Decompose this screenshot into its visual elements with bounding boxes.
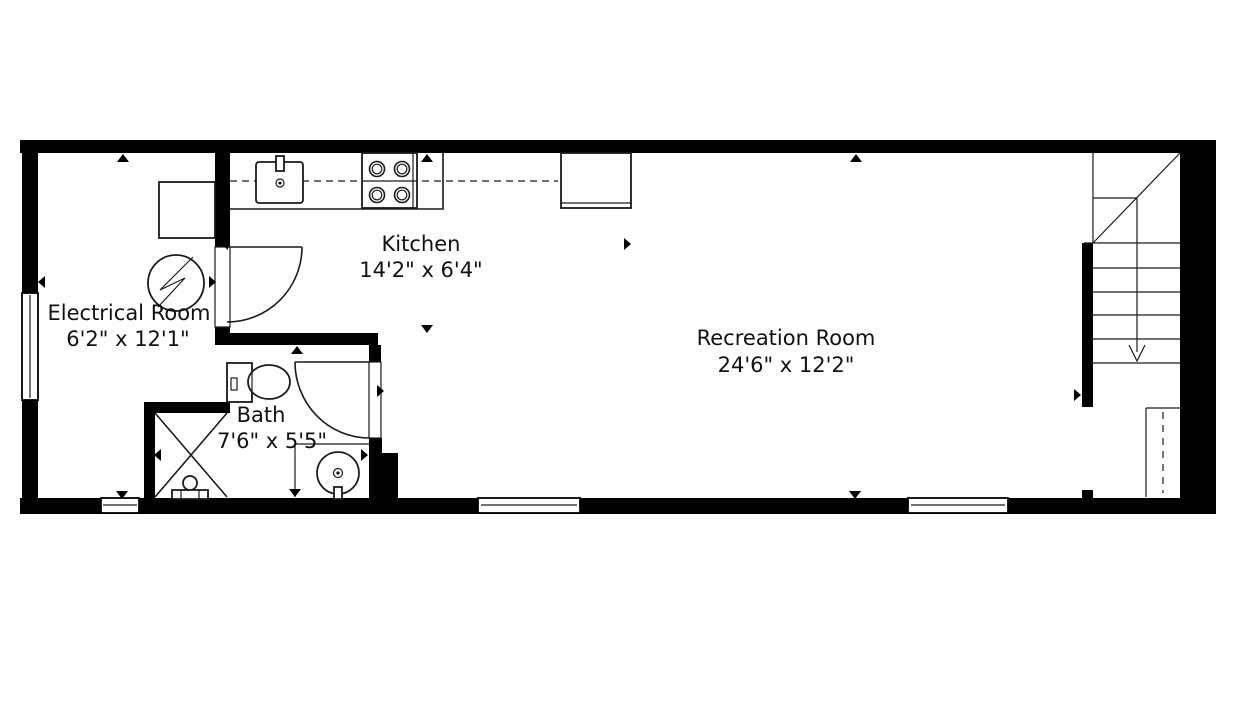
wall-bottom [20, 498, 1216, 514]
wall-top [20, 140, 1216, 153]
stove-icon [362, 153, 417, 208]
wall-bath-right-block [381, 453, 398, 498]
room-dims-kitchen: 14'2" x 6'4" [359, 258, 482, 282]
room-dims-recreation: 24'6" x 12'2" [718, 353, 855, 377]
refrigerator-icon [561, 153, 631, 208]
door-opening [369, 362, 381, 438]
wall-shower-top [144, 402, 230, 413]
door-electrical-room [215, 247, 302, 327]
wall-bath-right [369, 438, 382, 498]
door-bath [295, 362, 381, 438]
kitchen-sink-icon [256, 156, 303, 203]
room-label-bath: Bath [237, 403, 286, 427]
room-label-recreation: Recreation Room [697, 326, 876, 350]
floor-plan-drawing: Electrical Room 6'2" x 12'1" Kitchen 14'… [0, 0, 1240, 720]
wall-bath-top [215, 333, 378, 345]
wall-right [1180, 140, 1216, 514]
wall-electrical-kitchen-upper [215, 140, 230, 247]
floor-plan: Electrical Room 6'2" x 12'1" Kitchen 14'… [0, 0, 1240, 720]
room-dims-bath: 7'6" x 5'5" [217, 429, 327, 453]
room-label-electrical: Electrical Room [48, 301, 211, 325]
room-dims-electrical: 6'2" x 12'1" [66, 327, 189, 351]
door-opening [215, 247, 230, 327]
wall-shower-left [144, 402, 155, 498]
electrical-room-fixtures [148, 182, 215, 311]
wall-stairs-left [1082, 243, 1093, 407]
window-bottom-center [478, 498, 580, 513]
shower-icon [155, 413, 227, 499]
wall-bath-corner [369, 345, 381, 362]
staircase [1084, 153, 1181, 497]
toilet-icon [227, 363, 290, 402]
room-label-kitchen: Kitchen [382, 232, 461, 256]
appliance-box-icon [159, 182, 215, 238]
pedestal-sink-icon [317, 452, 359, 499]
door-swing-arc [227, 247, 302, 322]
faucet-icon [276, 156, 284, 171]
window-bottom-recreation [908, 498, 1008, 513]
window-bottom-electrical [101, 498, 139, 513]
wall-stub-bottom-right [1082, 490, 1093, 498]
window-left-wall [22, 293, 38, 400]
door-swing-arc [295, 362, 369, 438]
closet [1146, 408, 1181, 497]
stairs-down-arrow-icon [1129, 198, 1145, 361]
shower-valve-icon [172, 476, 208, 499]
